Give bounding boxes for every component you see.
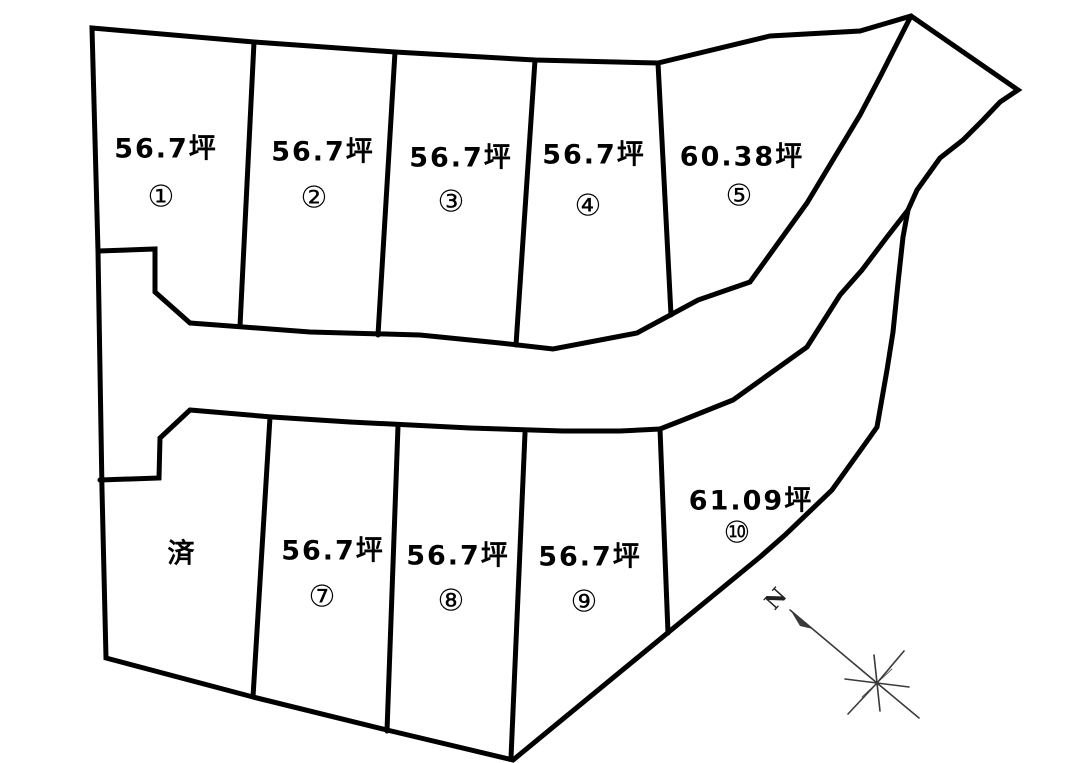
plot-1-area: 56.7坪 <box>114 127 218 166</box>
plot-6-sold-label: 済 <box>168 532 197 571</box>
plot-8-area: 56.7坪 <box>406 534 510 573</box>
divider-plot2-plot3 <box>378 52 395 335</box>
plot-5-area: 60.38坪 <box>680 135 804 174</box>
divider-plot1-plot2 <box>240 42 254 326</box>
plot-5-number: ⑤ <box>726 179 753 214</box>
divider-plot6-plot7 <box>253 417 270 697</box>
road-west-notch-lower <box>100 410 190 480</box>
plot-10-area: 61.09坪 <box>689 479 813 518</box>
compass: N <box>760 583 919 718</box>
plot-8-number: ⑧ <box>438 584 465 619</box>
plot-4-number: ④ <box>575 189 602 224</box>
divider-plot7-plot8 <box>387 426 398 731</box>
plot-2-area: 56.7坪 <box>271 130 375 169</box>
plot-3-number: ③ <box>438 185 465 220</box>
divider-plot9-plot10 <box>660 429 668 633</box>
plot-4-area: 56.7坪 <box>542 133 646 172</box>
site-plan: N 56.7坪 ① 56.7坪 ② 56.7坪 ③ 56.7坪 ④ 60.38坪… <box>0 0 1080 763</box>
compass-star <box>845 651 919 718</box>
road-upper-edge <box>190 16 911 349</box>
compass-north-label: N <box>760 583 793 615</box>
divider-plot3-plot4 <box>516 60 535 345</box>
site-outer-boundary <box>92 16 1018 760</box>
plot-9-number: ⑨ <box>571 585 598 620</box>
plot-1-number: ① <box>148 180 175 215</box>
road-west-notch-upper <box>98 249 190 323</box>
plot-9-area: 56.7坪 <box>538 535 642 574</box>
plot-7-area: 56.7坪 <box>281 529 385 568</box>
plot-3-area: 56.7坪 <box>409 136 513 175</box>
site-plan-svg: N <box>0 0 1080 763</box>
plot-2-number: ② <box>301 181 328 216</box>
road-lower-edge <box>190 210 908 431</box>
divider-plot4-plot5 <box>658 63 671 315</box>
plot-10-number: ⑩ <box>724 516 751 551</box>
divider-plot8-plot9 <box>511 433 525 758</box>
plot-7-number: ⑦ <box>309 580 336 615</box>
